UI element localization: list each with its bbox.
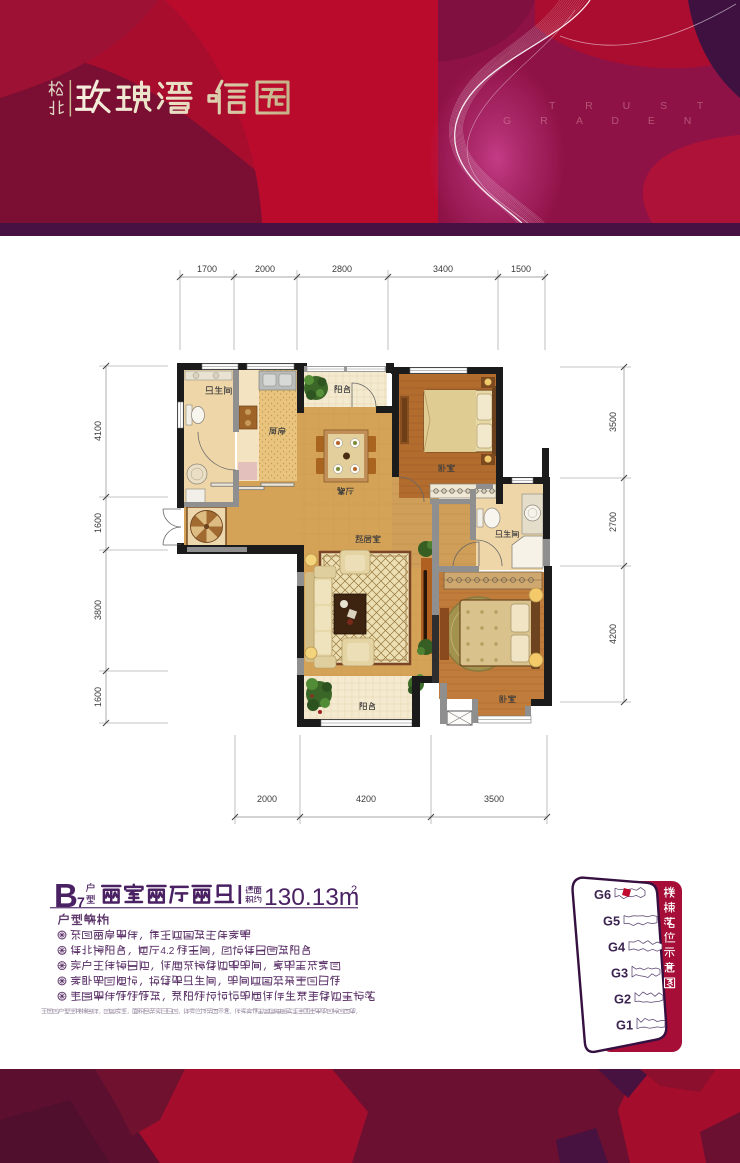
svg-text:4200: 4200 (356, 794, 376, 804)
svg-text:4100: 4100 (93, 421, 103, 441)
svg-text:3800: 3800 (93, 600, 103, 620)
svg-text:G2: G2 (614, 992, 631, 1007)
svg-text:B: B (54, 877, 78, 914)
svg-text:2: 2 (351, 884, 357, 896)
svg-text:G4: G4 (608, 940, 626, 955)
svg-text:T R U S T: T R U S T (549, 100, 717, 112)
svg-text:1600: 1600 (93, 687, 103, 707)
svg-text:1500: 1500 (511, 264, 531, 274)
svg-text:G3: G3 (611, 966, 628, 981)
svg-text:G6: G6 (594, 887, 611, 902)
svg-text:130.13m: 130.13m (264, 884, 359, 911)
svg-text:G5: G5 (603, 914, 620, 929)
svg-text:3400: 3400 (433, 264, 453, 274)
svg-text:1600: 1600 (93, 513, 103, 533)
svg-text:G1: G1 (616, 1018, 633, 1033)
svg-text:2000: 2000 (257, 794, 277, 804)
svg-text:4200: 4200 (608, 624, 618, 644)
svg-text:G R A D E N: G R A D E N (503, 115, 704, 127)
svg-text:2800: 2800 (332, 264, 352, 274)
svg-text:4.2: 4.2 (160, 946, 174, 957)
svg-text:1700: 1700 (197, 264, 217, 274)
svg-text:3500: 3500 (608, 412, 618, 432)
svg-text:2000: 2000 (255, 264, 275, 274)
svg-text:2700: 2700 (608, 512, 618, 532)
svg-text:3500: 3500 (484, 794, 504, 804)
